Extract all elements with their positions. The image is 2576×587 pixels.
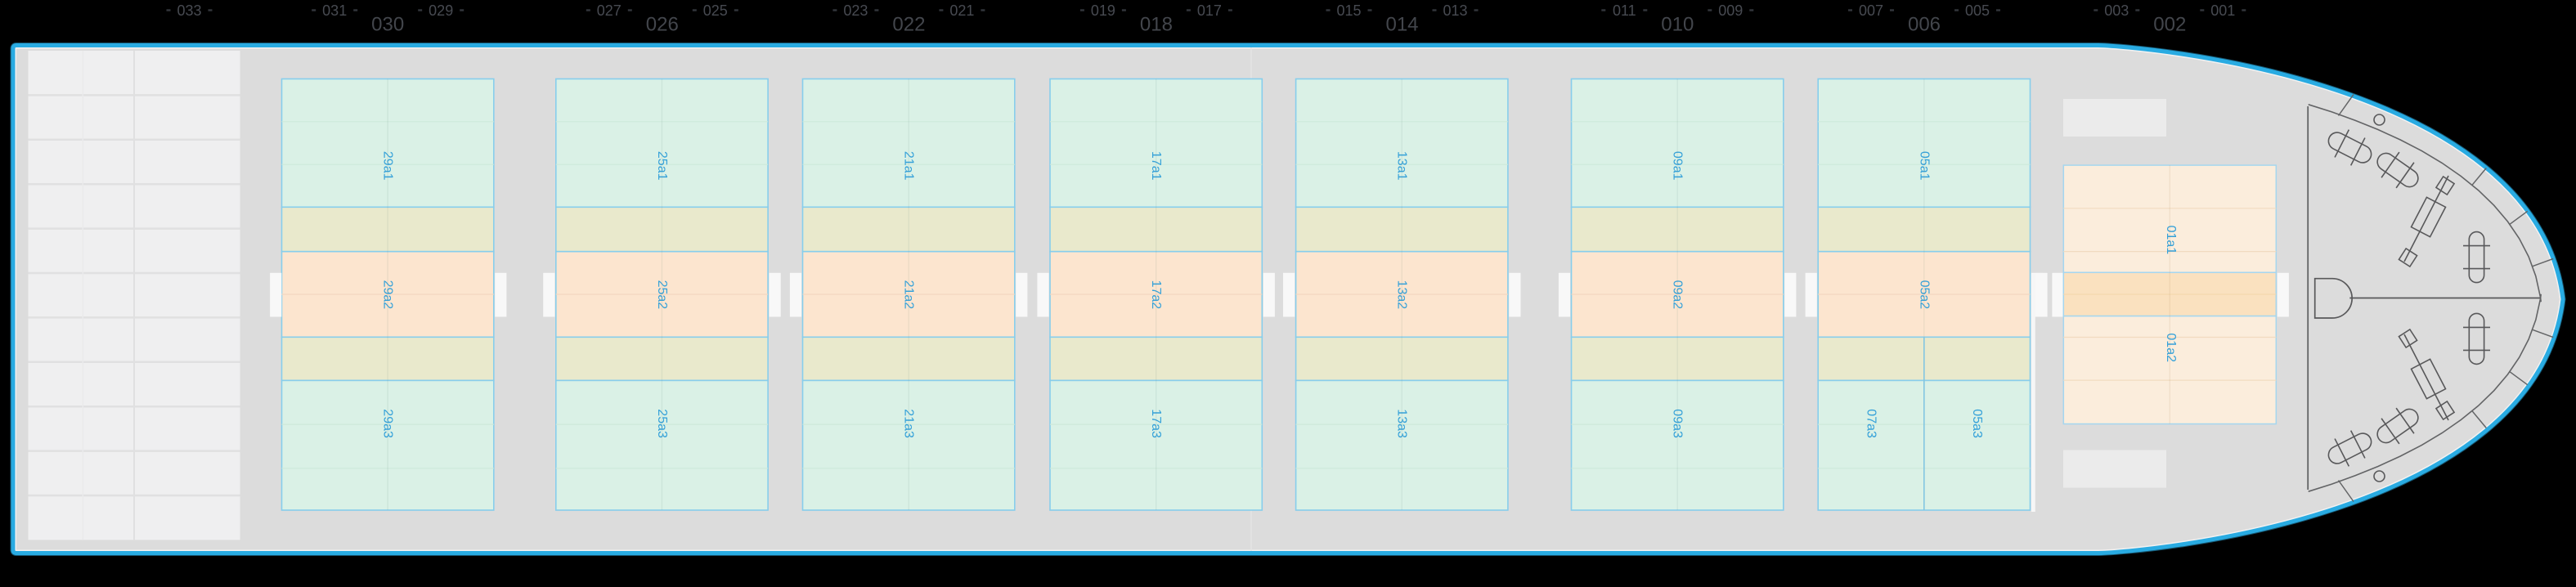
svg-text:003: 003 [2104,2,2129,19]
svg-text:018: 018 [1140,14,1173,36]
svg-text:027: 027 [597,2,622,19]
svg-text:029: 029 [429,2,453,19]
svg-text:05a3: 05a3 [1970,409,1984,438]
svg-text:002: 002 [2153,14,2186,36]
svg-text:01a1: 01a1 [2164,226,2178,255]
svg-text:010: 010 [1661,14,1694,36]
svg-text:017: 017 [1197,2,1222,19]
svg-text:005: 005 [1965,2,1990,19]
svg-text:033: 033 [177,2,201,19]
svg-text:026: 026 [646,14,679,36]
svg-text:031: 031 [322,2,347,19]
svg-text:014: 014 [1385,14,1418,36]
svg-text:009: 009 [1718,2,1743,19]
svg-text:07a3: 07a3 [1865,409,1878,438]
svg-text:015: 015 [1336,2,1361,19]
svg-text:030: 030 [371,14,404,36]
svg-text:001: 001 [2210,2,2235,19]
svg-text:011: 011 [1613,2,1636,19]
svg-text:021: 021 [949,2,974,19]
svg-text:006: 006 [1908,14,1941,36]
svg-text:022: 022 [892,14,925,36]
svg-text:023: 023 [843,2,868,19]
svg-text:01a2: 01a2 [2164,333,2178,362]
svg-text:007: 007 [1859,2,1883,19]
svg-text:019: 019 [1091,2,1115,19]
svg-text:013: 013 [1443,2,1467,19]
svg-text:025: 025 [703,2,728,19]
